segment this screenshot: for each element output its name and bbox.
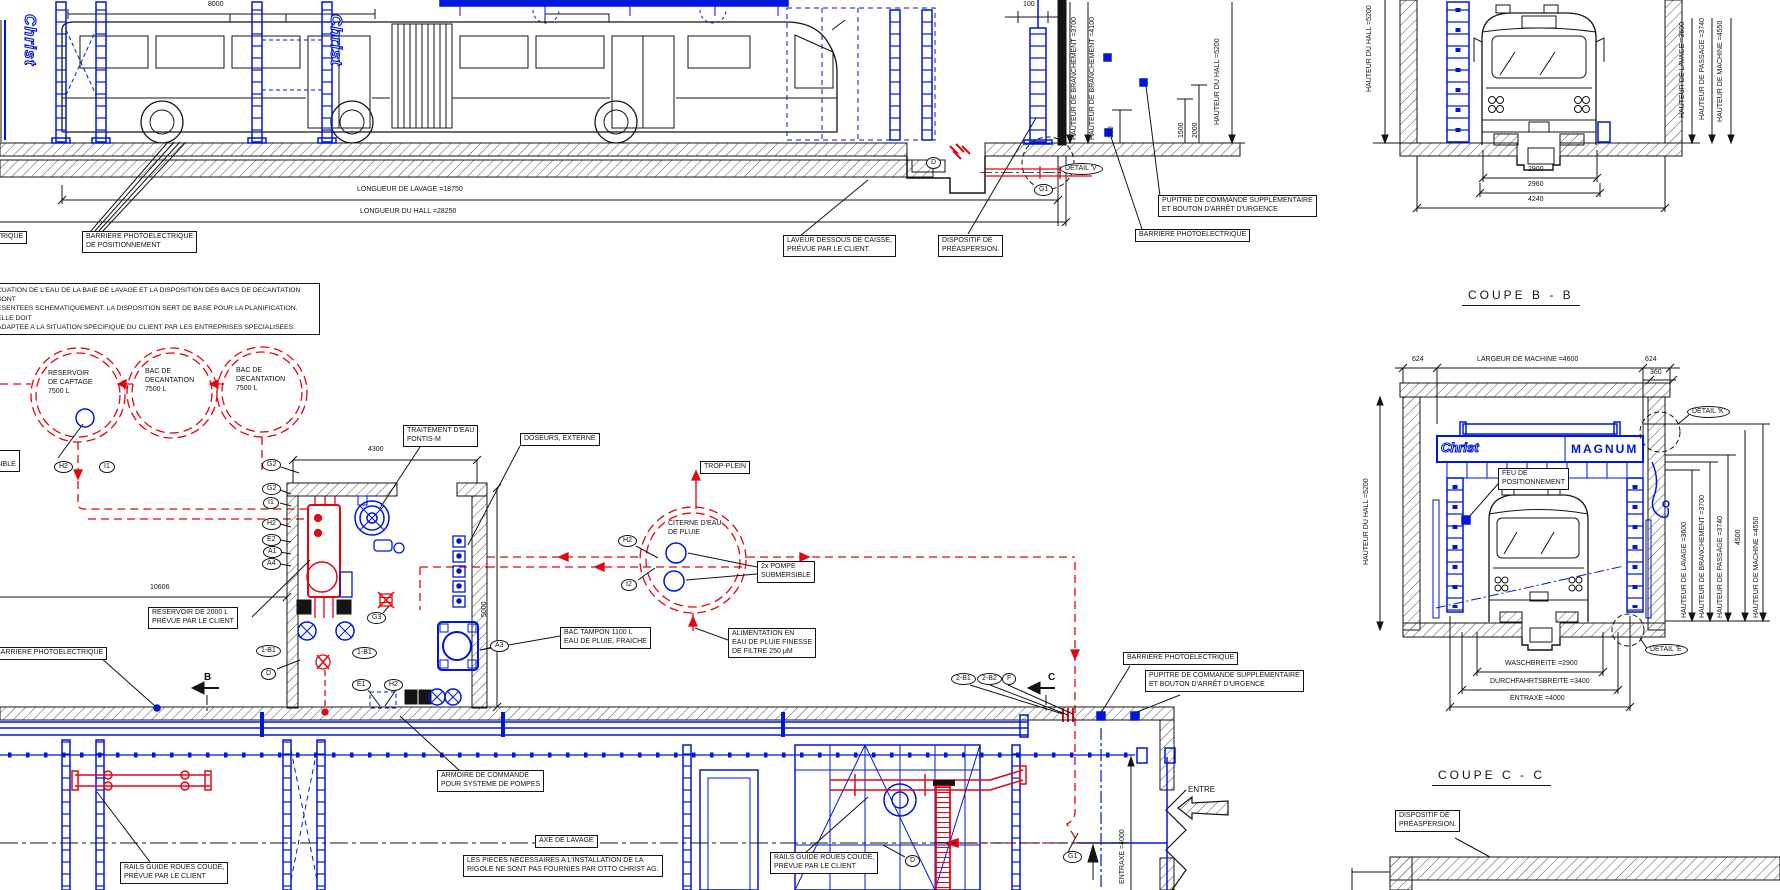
marker-a4: A4	[262, 558, 281, 570]
label-alimentation: ALIMENTATION EN EAU DE PLUIE FINESSE DE …	[728, 628, 816, 658]
title-coupe-b: COUPE B - B	[1462, 288, 1580, 306]
marker-h2-3: H2	[384, 679, 403, 691]
section-arrow-b: B	[204, 672, 211, 683]
label-rails-guide-1: RAILS GUIDE ROUES COUDÉ, PRÉVUE PAR LE C…	[120, 862, 228, 884]
label-laveur-dessous: LAVEUR DESSOUS DE CAISSE, PRÉVUE PAR LE …	[783, 235, 896, 257]
dim-bb-4240: 4240	[1528, 196, 1544, 203]
dim-cc-largeur: LARGEUR DE MACHINE =4600	[1477, 356, 1578, 363]
callout-detail-e: DETAIL 'E'	[1645, 644, 1688, 656]
marker-1b1-a: 1-B1	[256, 645, 281, 657]
label-dispositif-preaspersion: DISPOSITIF DE PRÉASPERSION.	[938, 235, 1003, 257]
elevation-bus	[62, 14, 845, 143]
dim-10606: 10606	[150, 584, 169, 591]
label-barriere-positionnement: BARRIERE PHOTOELECTRIQUE DE POSITIONNEME…	[82, 231, 197, 253]
label-armoire-commande: ARMOIRE DE COMMANDE POUR SYSTEME DE POMP…	[437, 770, 544, 792]
magnum-logo: MAGNUM	[1571, 442, 1638, 456]
dim-cc-hauteur-branchement: HAUTEUR DE BRANCHEMENT =3700	[1699, 495, 1706, 618]
dim-bb-2900: 2900	[1528, 166, 1544, 173]
marker-2b2: 2-B2	[977, 673, 1002, 685]
tank-bac-decantation-1: BAC DE DECANTATION 7500 L	[145, 368, 194, 394]
dim-5000: 5000	[481, 601, 488, 617]
marker-a3: A3	[490, 640, 509, 652]
label-pompe-submersible: POMPE SUBMERSIBLE	[0, 450, 20, 472]
label-bac-tampon: BAC TAMPON 1100 L EAU DE PLUIE, FRAICHE	[560, 627, 651, 649]
label-pupitre-elevation: PUPITRE DE COMMANDE SUPPLÉMENTAIRE ET BO…	[1158, 195, 1317, 217]
section-arrow-c: C	[1048, 672, 1055, 683]
title-coupe-c: COUPE C - C	[1432, 768, 1551, 786]
plan-note: CUATION DE L'EAU DE LA BAIE DE LAVAGE ET…	[0, 283, 320, 335]
marker-h2-1: H2	[54, 461, 73, 473]
label-rigole-note: LES PIECES NECESSAIRES A L'INSTALLATION …	[463, 855, 663, 877]
marker-i2: I2	[621, 579, 637, 591]
dim-4300: 4300	[368, 446, 384, 453]
dim-8000: 8000	[208, 1, 224, 8]
label-axe-lavage: AXE DE LAVAGE	[535, 835, 598, 848]
label-pupitre-plan: PUPITRE DE COMMANDE SUPPLÉMENTAIRE ET BO…	[1145, 670, 1304, 692]
dim-hauteur-branchement-3700: HAUTEUR DE BRANCHEMENT =3700	[1071, 17, 1078, 140]
dim-longueur-hall: LONGUEUR DU HALL =28250	[360, 208, 456, 215]
marker-h2-4: H2	[618, 535, 637, 547]
dim-cc-durchfahrtsbreite: DURCHFAHRTSBREITE =3400	[1490, 678, 1590, 685]
cad-sheet: 8000 100 LONGUEUR DE LAVAGE =18750 LONGU…	[0, 0, 1780, 890]
dim-entraxe-bottom: ENTRAXE =4000	[1119, 829, 1126, 884]
christ-logo-vertical-1: Christ	[20, 14, 38, 66]
label-barriere-left-plan: BARRIERE PHOTOELECTRIQUE	[0, 647, 107, 660]
dim-300: 300	[1108, 126, 1115, 138]
marker-2b1: 2-B1	[951, 673, 976, 685]
label-citerne: CITERNE D'EAU DE PLUIE	[668, 520, 721, 538]
dim-cc-624-right: 624	[1645, 356, 1657, 363]
marker-h2-2: H2	[262, 518, 281, 530]
dim-bb-hauteur-hall: HAUTEUR DU HALL =5200	[1366, 5, 1373, 92]
tank-bac-decantation-2: BAC DE DECANTATION 7500 L	[236, 367, 285, 393]
marker-e1: E1	[352, 679, 371, 691]
elevation-group	[0, 0, 1245, 236]
dim-cc-waschbreite: WASCHBREITE =2900	[1505, 660, 1578, 667]
dim-2000: 2000	[1192, 122, 1199, 138]
label-rails-guide-2: RAILS GUIDE ROUES COUDÉ, PRÉVUE PAR LE C…	[770, 852, 878, 874]
dim-cc-hauteur-passage: HAUTEUR DE PASSAGE =3740	[1717, 516, 1724, 618]
drawing-linework	[0, 0, 1780, 890]
dim-cc-hauteur-lavage: HAUTEUR DE LAVAGE =3600	[1681, 522, 1688, 618]
dim-bb-hauteur-lavage: HAUTEUR DE LAVAGE =3600	[1679, 22, 1686, 118]
label-doseurs-externe: DOSEURS, EXTERNE	[520, 433, 600, 446]
label-barriere-right: BARRIERE PHOTOELECTRIQUE	[1135, 229, 1250, 242]
label-barriere-cut: RE PHOTOELECTRIQUE	[0, 231, 27, 244]
label-trop-plein: TROP-PLEIN	[700, 461, 750, 474]
dim-longueur-lavage: LONGUEUR DE LAVAGE =18750	[357, 186, 463, 193]
callout-detail-k: DETAIL 'K'	[1687, 406, 1730, 418]
label-traitement-eau: TRAITEMENT D'EAU FONTIS-M	[403, 425, 478, 447]
dim-cc-hauteur-hall: HAUTEUR DU HALL =5200	[1363, 478, 1370, 565]
dim-hauteur-hall-5200: HAUTEUR DU HALL =5200	[1214, 38, 1221, 125]
marker-1b1-b: 1-B1	[352, 647, 377, 659]
marker-i1-2: I1	[263, 497, 279, 509]
marker-d-plan: D	[261, 668, 276, 680]
dim-cc-4500: 4500	[1735, 529, 1742, 545]
dim-bb-hauteur-passage: HAUTEUR DE PASSAGE =3740	[1699, 18, 1706, 120]
dim-bb-2960: 2960	[1528, 181, 1544, 188]
marker-d-bottom: D	[905, 855, 920, 867]
label-dispositif-preaspersion-cc: DISPOSITIF DE PRÉASPERSION.	[1395, 810, 1460, 832]
dim-hauteur-branchement-4100: HAUTEUR DE BRANCHEMENT =4100	[1089, 17, 1096, 140]
marker-d-elevation: D	[926, 157, 941, 169]
label-feu-positionnement: FEU DE POSITIONNEMENT	[1498, 468, 1569, 490]
label-barriere-plan: BARRIERE PHOTOELECTRIQUE	[1123, 652, 1238, 665]
plan-blue	[76, 409, 1139, 720]
dim-cc-hauteur-machine: HAUTEUR DE MACHINE =4550	[1753, 517, 1760, 618]
plan-black	[0, 424, 1228, 890]
marker-e2: E2	[262, 534, 281, 546]
dim-cc-624-left: 624	[1412, 356, 1424, 363]
christ-logo-vertical-2: Christ	[326, 14, 344, 66]
dim-bb-hauteur-machine: HAUTEUR DE MACHINE =4550	[1717, 21, 1724, 122]
tank-reservoir-captage: RESERVOIR DE CAPTAGE 7500 L	[48, 370, 93, 396]
dim-cc-entraxe: ENTRAXE =4000	[1510, 695, 1565, 702]
dim-1500: 1500	[1178, 122, 1185, 138]
label-entre: ENTRE	[1188, 785, 1215, 795]
dim-cc-360: 360	[1650, 369, 1662, 376]
marker-i1-1: I1	[99, 461, 115, 473]
label-reservoir-2000: RESERVOIR DE 2000 L PRÉVUE PAR LE CLIENT	[148, 607, 238, 629]
dim-100: 100	[1023, 1, 1035, 8]
marker-a1: A1	[263, 546, 282, 558]
callout-detail-v: DETAIL 'V'	[1060, 163, 1103, 175]
label-2x-pompe-submersible: 2x POMPE SUBMERSIBLE	[757, 561, 815, 583]
plan-red	[0, 347, 1079, 843]
christ-logo-cc: Christ	[1441, 440, 1479, 455]
